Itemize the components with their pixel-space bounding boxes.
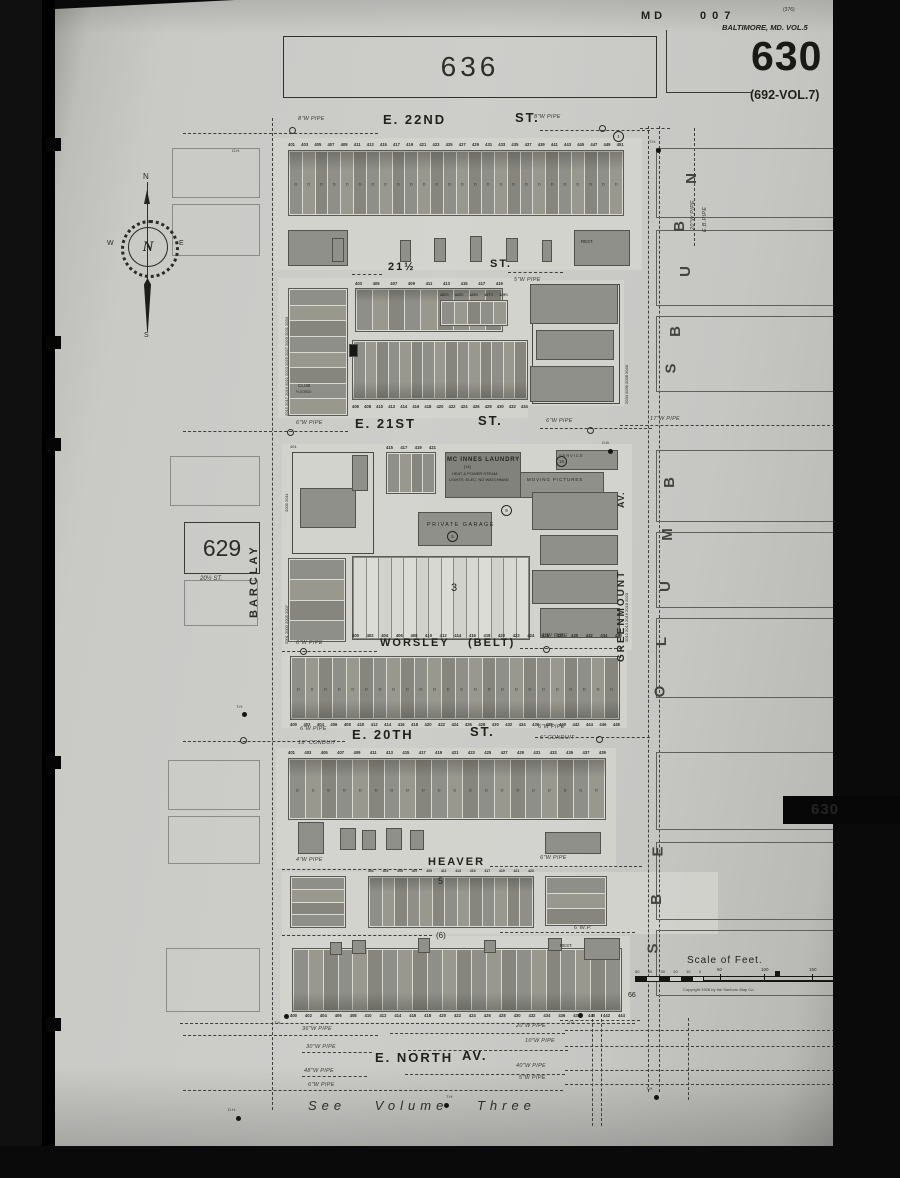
film-punch-hole xyxy=(46,138,61,151)
pipe-label: 48"W PIPE xyxy=(304,1068,334,1074)
house-number: 419 xyxy=(406,142,413,147)
building-cell xyxy=(290,353,346,368)
compass-arrow-icon xyxy=(144,190,150,204)
building-cell xyxy=(495,878,507,926)
house-number: 417 xyxy=(400,445,407,450)
margin-block-outline-right xyxy=(656,618,834,698)
house-number: 414 xyxy=(394,1013,401,1018)
edge-tab-number: 630 xyxy=(811,801,839,818)
map-annotation: REST. xyxy=(581,239,593,244)
house-number: 434 xyxy=(600,633,607,638)
dwelling-letter: D xyxy=(406,687,409,692)
building-cell: D xyxy=(380,152,392,214)
house-number: 429 xyxy=(472,142,479,147)
house-number: 422 xyxy=(454,1013,461,1018)
dwelling-letter: D xyxy=(597,687,600,692)
house-number: 416 xyxy=(412,404,419,409)
manhole-circle xyxy=(543,646,550,653)
house-number: 420 xyxy=(436,404,443,409)
map-annotation: 401 xyxy=(290,444,297,449)
header-plate-number: 007 xyxy=(700,10,736,22)
building-cell: D xyxy=(385,760,400,818)
adjacent-sheet-number-left: 629 xyxy=(203,535,241,562)
map-annotation: (6) xyxy=(436,931,446,940)
building-cell: D xyxy=(537,658,550,718)
edge-index-tab: 630 xyxy=(783,796,900,824)
map-annotation: 2015 2017 2019 2021 2023 2025 2027 2029 … xyxy=(284,317,289,416)
pipe-label: 6" CONDUIT xyxy=(540,735,575,741)
house-number: 425 xyxy=(446,142,453,147)
house-number: 421 xyxy=(429,445,436,450)
street-name-suffix: (BELT) xyxy=(468,637,515,649)
street-dashed-line xyxy=(500,932,635,933)
map-annotation: 2034 2036 2038 2040 xyxy=(624,365,629,404)
building-cell xyxy=(547,950,561,1010)
house-number: 409 xyxy=(408,281,415,286)
building-cell: D xyxy=(369,760,384,818)
house-number: 405 xyxy=(314,142,321,147)
dwelling-letter: D xyxy=(532,788,535,793)
house-number: 430 xyxy=(514,1013,521,1018)
scale-segment xyxy=(670,977,681,981)
building-cell: D xyxy=(456,658,469,718)
margin-block-outline-right xyxy=(656,842,834,920)
utility-marker-label: D.H. xyxy=(228,1107,236,1112)
dwelling-letter: D xyxy=(516,788,519,793)
scale-segment xyxy=(636,977,647,981)
house-number: 413 xyxy=(367,142,374,147)
utility-marker-dot xyxy=(608,449,613,454)
building-cell: D xyxy=(469,152,481,214)
house-number: 439 xyxy=(599,750,606,755)
dwelling-letter: D xyxy=(297,687,300,692)
building-cell xyxy=(290,290,346,305)
building-cell: D xyxy=(353,760,368,818)
street-name: E. 22ND xyxy=(383,112,446,127)
map-annotation: MOVING PICTURES xyxy=(527,477,583,482)
building-cell xyxy=(481,342,492,398)
house-number: 424 xyxy=(451,722,458,727)
dwelling-letter: D xyxy=(307,182,310,187)
map-annotation: LIGHTS: ELEC. NO WATCHMAN xyxy=(449,477,509,482)
building-cell: D xyxy=(322,760,337,818)
building-cell: D xyxy=(333,658,346,718)
margin-volume-letter: M xyxy=(659,528,676,541)
margin-block-outline-right xyxy=(656,532,834,608)
building-cell xyxy=(504,342,515,398)
building-cell: D xyxy=(401,658,414,718)
outbuilding xyxy=(470,236,482,262)
dwelling-letter: D xyxy=(610,687,613,692)
street-dashed-line xyxy=(508,272,563,273)
header-tiny-number: (376) xyxy=(783,7,795,13)
street-dashed-line xyxy=(620,425,835,426)
building-cell xyxy=(429,558,441,638)
building-cell: D xyxy=(341,152,353,214)
house-number: 437 xyxy=(525,142,532,147)
building-cell xyxy=(446,342,457,398)
dwelling-letter: D xyxy=(583,687,586,692)
house-number: 427 xyxy=(459,142,466,147)
dwelling-letter: D xyxy=(438,788,441,793)
house-number: 448 xyxy=(613,722,620,727)
building-cell xyxy=(354,558,366,638)
dwelling-letter: D xyxy=(338,687,341,692)
scale-tick-label: 0 xyxy=(699,969,701,974)
dwelling-letter: D xyxy=(346,182,349,187)
outbuilding xyxy=(410,830,424,850)
building-cell xyxy=(377,342,388,398)
header-alt-number: (692-VOL.7) xyxy=(750,88,819,102)
house-number: 433 xyxy=(498,142,505,147)
manhole-circle xyxy=(599,125,606,132)
scale-tick-label: 20 xyxy=(673,969,677,974)
dwelling-letter: D xyxy=(579,788,582,793)
house-number: 413 xyxy=(455,869,461,873)
building-cell xyxy=(400,342,411,398)
outbuilding xyxy=(362,830,376,850)
street-name: E. 20TH xyxy=(352,727,414,742)
building-cell xyxy=(443,950,457,1010)
building-cell xyxy=(412,454,423,492)
dwelling-letter: D xyxy=(310,687,313,692)
dwelling-letter: D xyxy=(312,788,315,793)
building-cell: D xyxy=(416,760,431,818)
house-number: 424 xyxy=(527,633,534,638)
outbuilding xyxy=(536,330,614,360)
dwelling-letter: D xyxy=(474,182,477,187)
house-number: 402 xyxy=(305,1013,312,1018)
building-cell xyxy=(428,950,442,1010)
building-cell: D xyxy=(316,152,328,214)
building-cell: D xyxy=(418,152,430,214)
house-number: 430 xyxy=(497,404,504,409)
utility-marker-dot xyxy=(236,1116,241,1121)
street-name: E. NORTH xyxy=(375,1050,453,1065)
margin-block-outline-left xyxy=(166,948,260,1012)
house-number: 403 xyxy=(304,750,311,755)
building-cell xyxy=(405,290,420,330)
house-number: 432 xyxy=(586,633,593,638)
circled-number: 15 xyxy=(556,456,567,467)
house-number: 425 xyxy=(484,750,491,755)
dwelling-letter: D xyxy=(448,182,451,187)
building-cell xyxy=(423,454,434,492)
building-cell xyxy=(324,950,338,1010)
outbuilding xyxy=(532,492,618,530)
adjacent-sheet-number-top: 636 xyxy=(441,51,500,83)
dwelling-letter: D xyxy=(453,788,456,793)
street-dashed-line xyxy=(180,1023,635,1024)
scale-tick-label: 50 xyxy=(635,969,639,974)
house-number: 424 xyxy=(469,1013,476,1018)
outbuilding xyxy=(434,238,446,262)
dwelling-letter: D xyxy=(433,687,436,692)
house-number: 432 xyxy=(529,1013,536,1018)
street-name: 21½ xyxy=(388,261,415,273)
dwelling-letter: D xyxy=(419,687,422,692)
house-number: 403 xyxy=(301,142,308,147)
map-annotation: [14] xyxy=(464,464,471,469)
building-cell: D xyxy=(558,760,573,818)
house-number: 406 xyxy=(352,404,359,409)
house-number: 428 xyxy=(485,404,492,409)
building-block-row xyxy=(368,876,534,928)
street-name-vertical: AV. xyxy=(616,491,626,508)
map-annotation: HEAT & POWER STEAM: xyxy=(452,471,498,476)
house-number: 445 xyxy=(577,142,584,147)
dwelling-letter: D xyxy=(488,687,491,692)
outbuilding xyxy=(400,240,411,262)
house-number: 446 xyxy=(599,722,606,727)
street-dashed-line xyxy=(282,651,377,652)
building-block-row xyxy=(545,876,607,926)
margin-volume-letter: E xyxy=(650,846,667,856)
building-block-row xyxy=(440,300,508,326)
building-cell xyxy=(458,342,469,398)
house-number: 432 xyxy=(505,722,512,727)
house-number: 417 xyxy=(393,142,400,147)
house-number: 406 xyxy=(335,1013,342,1018)
manhole-circle xyxy=(240,737,247,744)
house-number-strip: 4064084104124144164184204224244264284304… xyxy=(352,404,528,409)
building-cell xyxy=(455,302,467,324)
dwelling-letter: D xyxy=(469,788,472,793)
building-cell xyxy=(469,342,480,398)
building-cell xyxy=(479,558,491,638)
margin-block-outline-right xyxy=(656,450,834,522)
dwelling-letter: D xyxy=(461,182,464,187)
outbuilding xyxy=(530,284,618,324)
map-annotation: FLOORED xyxy=(296,390,311,394)
building-cell xyxy=(517,950,531,1010)
building-cell xyxy=(481,302,493,324)
building-cell xyxy=(389,342,400,398)
manhole-circle xyxy=(587,427,594,434)
building-cell xyxy=(290,306,346,321)
margin-volume-letter: S xyxy=(663,363,680,373)
building-cell xyxy=(547,894,605,909)
copyright-line: Copyright 1928 by the Sanborn Map Co. xyxy=(683,987,755,992)
house-number: 407 xyxy=(412,869,418,873)
street-name-vertical: GREENMOUNT xyxy=(616,570,627,662)
dwelling-letter: D xyxy=(576,182,579,187)
dwelling-letter: D xyxy=(447,687,450,692)
utility-marker-label: T.H. xyxy=(274,1020,281,1025)
scale-tick-mark xyxy=(720,974,721,980)
house-number: 405 xyxy=(373,281,380,286)
pipe-label: 20"W PIPE xyxy=(516,1023,546,1029)
house-number: 414 xyxy=(400,404,407,409)
house-number: 426 xyxy=(473,404,480,409)
house-number-strip: 415417419421 xyxy=(386,445,436,450)
building-cell xyxy=(408,878,420,926)
building-block-row xyxy=(352,340,528,400)
outbuilding xyxy=(332,238,344,262)
street-dashed-line xyxy=(565,1046,835,1047)
outbuilding xyxy=(340,828,356,850)
margin-block-outline-left xyxy=(168,816,260,864)
margin-block-outline-left xyxy=(170,456,260,506)
building-cell: D xyxy=(592,658,605,718)
house-number: 419 xyxy=(496,281,503,286)
building-cell xyxy=(502,950,516,1010)
house-number: 415 xyxy=(386,445,393,450)
house-number: 451 xyxy=(617,142,624,147)
scale-tick-label: 30 xyxy=(661,969,665,974)
building-cell: D xyxy=(589,760,604,818)
house-number: 440 xyxy=(588,1013,595,1018)
street-dashed-line xyxy=(183,1090,563,1091)
dwelling-letter: D xyxy=(379,687,382,692)
house-number: 411 xyxy=(354,142,361,147)
building-cell: D xyxy=(479,760,494,818)
street-dashed-line-vertical xyxy=(688,1018,689,1100)
outbuilding xyxy=(574,230,630,266)
utility-marker-dot xyxy=(284,1014,289,1019)
outbuilding xyxy=(418,938,430,953)
pipe-label: 6"W PIPE xyxy=(546,418,573,424)
dwelling-letter: D xyxy=(333,182,336,187)
building-cell: D xyxy=(572,152,584,214)
street-dashed-line xyxy=(302,1076,367,1077)
house-number: 433 xyxy=(550,750,557,755)
building-cell xyxy=(290,560,344,579)
dwelling-letter: D xyxy=(324,687,327,692)
dwelling-letter: D xyxy=(410,182,413,187)
building-cell: D xyxy=(551,658,564,718)
building-cell xyxy=(442,302,454,324)
building-cell: D xyxy=(508,152,520,214)
house-number: 421 xyxy=(452,750,459,755)
house-number: 419 xyxy=(499,869,505,873)
adjacent-sheet-box-left: 629 xyxy=(184,522,260,574)
building-cell xyxy=(292,915,344,926)
building-cell: D xyxy=(428,658,441,718)
building-cell xyxy=(392,558,404,638)
building-cell xyxy=(458,878,470,926)
building-block-row xyxy=(288,288,348,416)
house-number: 424 xyxy=(461,404,468,409)
building-cell: D xyxy=(393,152,405,214)
utility-marker-label: T.H. xyxy=(646,1086,653,1091)
building-cell: D xyxy=(546,152,558,214)
outbuilding xyxy=(352,455,368,491)
street-dashed-line xyxy=(282,935,432,936)
building-cell: D xyxy=(405,152,417,214)
scale-tick-label: 10 xyxy=(686,969,690,974)
street-dashed-line xyxy=(183,1035,378,1036)
building-cell: D xyxy=(432,760,447,818)
building-cell xyxy=(290,368,346,383)
street-dashed-line xyxy=(640,128,670,129)
house-number: 423 xyxy=(432,142,439,147)
map-annotation: 2009 2011 xyxy=(284,493,289,512)
dwelling-letter: D xyxy=(564,788,567,793)
building-cell: D xyxy=(337,760,352,818)
house-number: 439 xyxy=(538,142,545,147)
scale-of-feet: Scale of Feet. 50403020100 Copyright 192… xyxy=(635,952,845,1000)
dwelling-letter: D xyxy=(392,687,395,692)
pipe-label: 5"W PIPE xyxy=(514,277,541,283)
scale-left-ticks: 50403020100 xyxy=(635,969,701,974)
house-number: 404 xyxy=(320,1013,327,1018)
building-block-row: DDDDDDDDDDDDDDDDDDDD xyxy=(288,758,606,820)
building-cell xyxy=(445,878,457,926)
house-number: 422 xyxy=(438,722,445,727)
house-number: 411 xyxy=(441,869,447,873)
pipe-label: 4"W PIPE xyxy=(296,857,323,863)
house-number: 435 xyxy=(566,750,573,755)
scale-tick-mark xyxy=(764,974,765,980)
pipe-label: 6"W PIPE xyxy=(540,855,567,861)
dwelling-letter: D xyxy=(501,687,504,692)
house-number: 420 xyxy=(425,722,432,727)
street-dashed-line xyxy=(183,431,348,432)
building-cell xyxy=(487,950,501,1010)
street-name: E. 21ST xyxy=(355,416,416,431)
dwelling-letter: D xyxy=(525,182,528,187)
outbuilding xyxy=(300,488,356,528)
house-number: 423½ xyxy=(455,293,464,297)
house-number-strip: 4004024044064084104124144164184204224244… xyxy=(290,1013,625,1018)
pipe-label: 4"W PIPE xyxy=(541,633,568,639)
building-cell xyxy=(309,950,323,1010)
house-number: 419 xyxy=(415,445,422,450)
scale-tick-label: 40 xyxy=(648,969,652,974)
house-number: 422 xyxy=(449,404,456,409)
outbuilding xyxy=(540,535,618,565)
building-cell xyxy=(367,558,379,638)
street-dashed-line xyxy=(302,1052,372,1053)
dwelling-letter: D xyxy=(296,788,299,793)
street-dashed-line xyxy=(540,428,652,429)
house-number: 415 xyxy=(402,750,409,755)
dwelling-letter: D xyxy=(474,687,477,692)
house-number: 427 xyxy=(501,750,508,755)
margin-volume-letter: L xyxy=(653,637,670,646)
house-number: 418 xyxy=(424,1013,431,1018)
map-annotation: 3 xyxy=(451,582,457,594)
house-number: 412 xyxy=(379,1013,386,1018)
compass-monogram: N xyxy=(128,227,168,267)
building-cell: D xyxy=(585,152,597,214)
house-number: 400 xyxy=(290,1013,297,1018)
house-number: 426 xyxy=(484,1013,491,1018)
building-cell: D xyxy=(387,658,400,718)
dwelling-letter: D xyxy=(615,182,618,187)
house-number: 403 xyxy=(383,869,389,873)
building-cell: D xyxy=(347,658,360,718)
dwelling-letter: D xyxy=(589,182,592,187)
outbuilding xyxy=(298,822,324,854)
utility-marker-label: T.H. xyxy=(236,704,243,709)
adjacent-sheet-box-top: 636 xyxy=(283,36,657,98)
dwelling-letter: D xyxy=(435,182,438,187)
house-number: 406 xyxy=(330,722,337,727)
building-cell: D xyxy=(526,760,541,818)
margin-volume-letter: B xyxy=(661,477,678,488)
house-number: 408 xyxy=(364,404,371,409)
house-number: 405 xyxy=(321,750,328,755)
dwelling-letter: D xyxy=(551,182,554,187)
house-number: 444 xyxy=(618,1013,625,1018)
building-cell: D xyxy=(578,658,591,718)
map-annotation: O.H. xyxy=(232,148,240,153)
building-cell xyxy=(370,878,382,926)
house-number: 430 xyxy=(571,633,578,638)
house-number-strip: 4014034054074094114134154174194214234254… xyxy=(288,750,606,755)
